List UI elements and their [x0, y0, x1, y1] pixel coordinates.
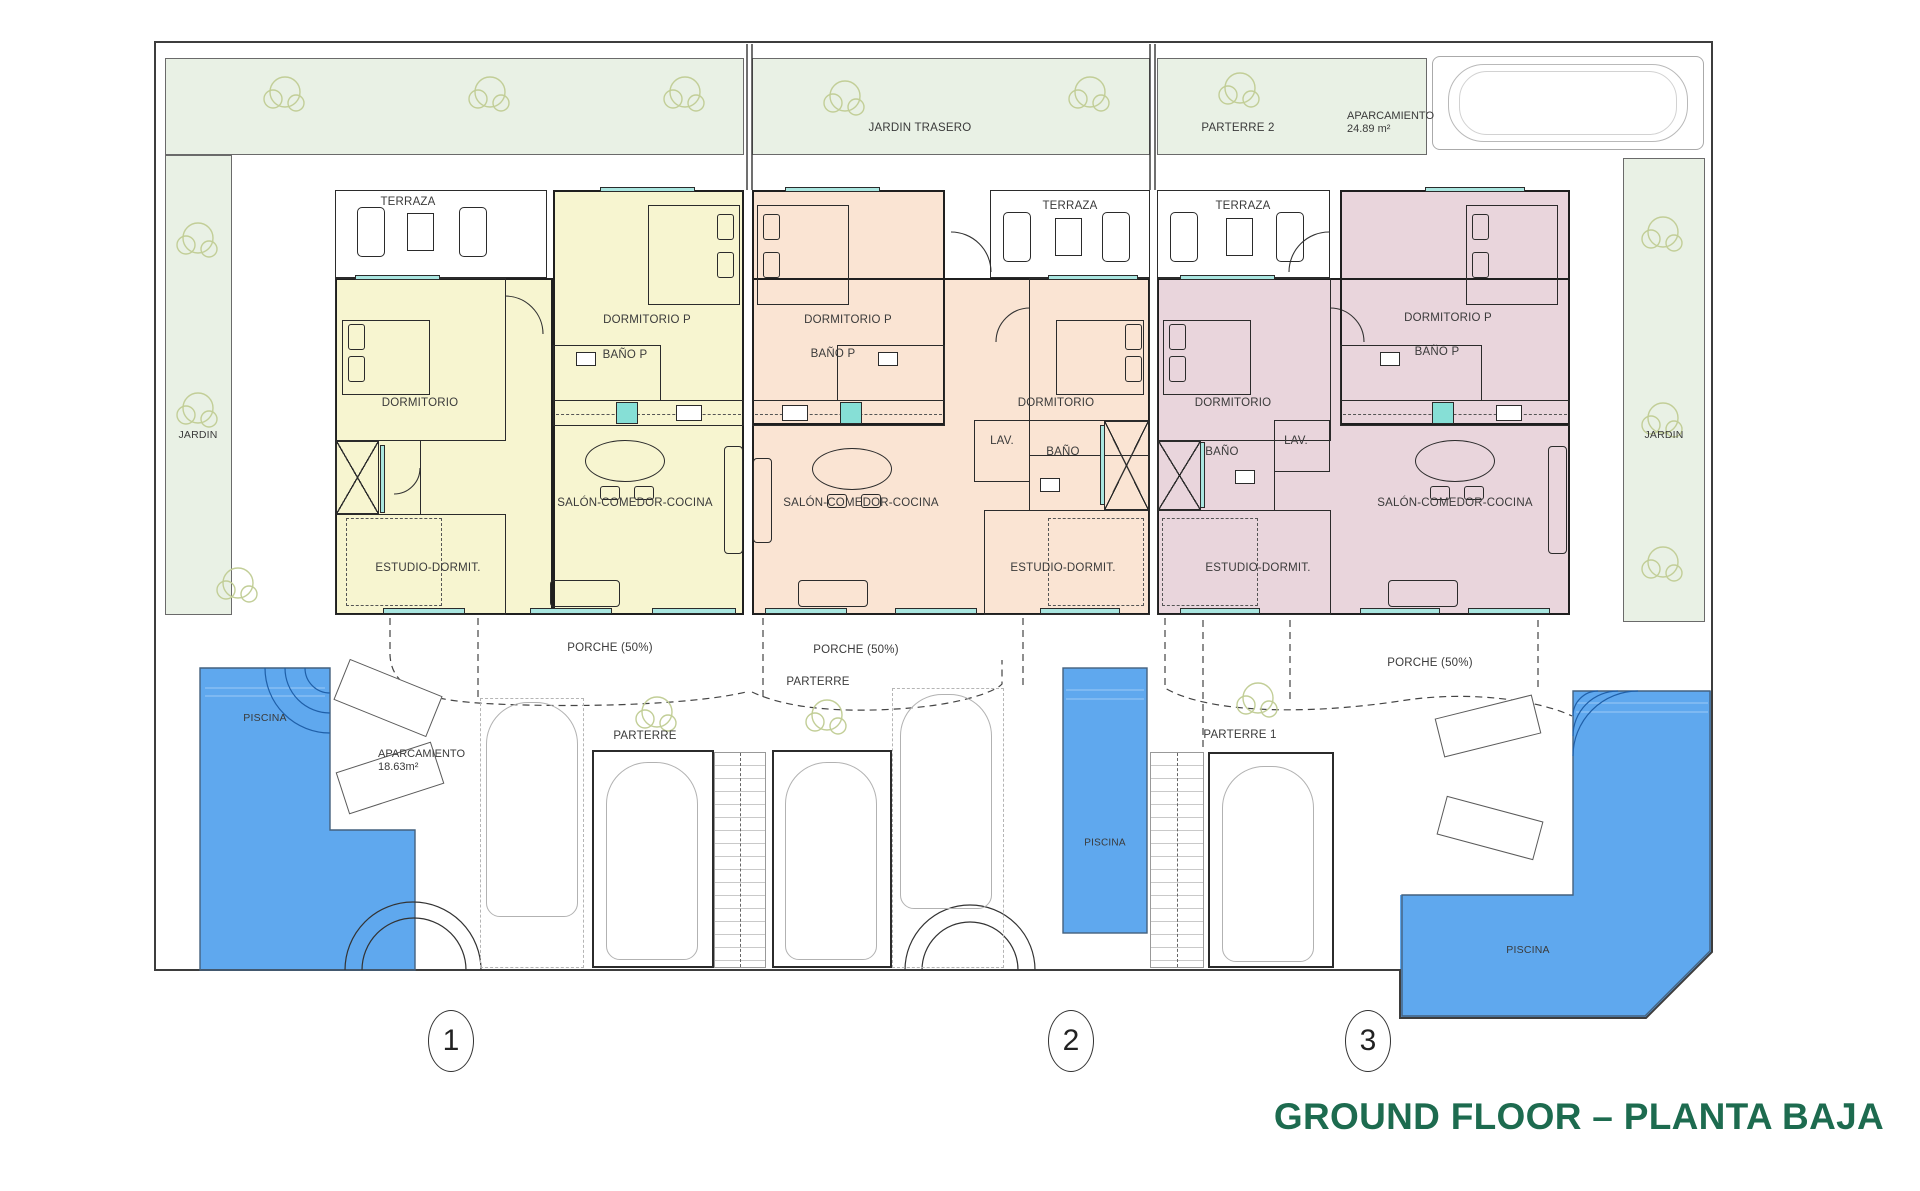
- label-dormitorio-unit1: DORMITORIO: [382, 397, 459, 409]
- car-icon: [900, 694, 992, 909]
- sofa-icon: [753, 458, 772, 543]
- label-jardin-left: JARDIN: [178, 429, 217, 441]
- label-salon-unit3: SALÓN-COMEDOR-COCINA: [1377, 497, 1532, 509]
- tree-icon: [217, 568, 257, 602]
- toilet-icon: [878, 352, 898, 366]
- window: [600, 187, 695, 192]
- toilet-icon: [1040, 478, 1060, 492]
- label-terraza-unit3: TERRAZA: [1215, 200, 1270, 212]
- label-salon-unit1: SALÓN-COMEDOR-COCINA: [557, 497, 712, 509]
- tree-icon: [1642, 547, 1682, 581]
- terrace-chair-icon: [1003, 212, 1031, 262]
- window: [895, 608, 977, 614]
- label-parterre-2: PARTERRE 2: [1201, 122, 1274, 134]
- pillow-icon: [1472, 214, 1489, 240]
- page-title: GROUND FLOOR – PLANTA BAJA: [1274, 1096, 1884, 1138]
- label-terraza-unit2: TERRAZA: [1042, 200, 1097, 212]
- label-bano-p-unit2: BAÑO P: [811, 348, 856, 360]
- kitchen-counter-unit1: [553, 400, 744, 426]
- shower-unit3: [1158, 441, 1201, 510]
- sofa-icon: [724, 446, 743, 554]
- unit-number-1-value: 1: [443, 1024, 460, 1058]
- window: [530, 608, 612, 614]
- unit-number-2: 2: [1048, 1010, 1094, 1072]
- dining-table-icon: [1415, 440, 1495, 482]
- tree-icon: [1069, 77, 1109, 111]
- window: [1468, 608, 1550, 614]
- label-piscina-left: PISCINA: [243, 712, 286, 724]
- label-porche-unit2: PORCHE (50%): [813, 644, 898, 656]
- shower-unit2: [1104, 421, 1149, 510]
- terrace-table-icon: [1055, 218, 1082, 256]
- label-dormitorio-p-unit2: DORMITORIO P: [804, 314, 892, 326]
- tree-icon: [1219, 73, 1259, 107]
- window: [652, 608, 736, 614]
- pillow-icon: [1125, 324, 1142, 350]
- toilet-icon: [1235, 470, 1255, 484]
- pillow-icon: [763, 214, 780, 240]
- hob-icon: [840, 402, 862, 424]
- sink-icon: [1496, 405, 1522, 421]
- terrace-chair-icon: [357, 207, 385, 257]
- label-lav-unit3: LAV.: [1284, 435, 1308, 447]
- sofa-icon: [550, 580, 620, 607]
- window: [1100, 425, 1105, 505]
- label-porche-unit1: PORCHE (50%): [567, 642, 652, 654]
- label-aparcamiento-left: APARCAMIENTO 18.63m²: [378, 748, 465, 774]
- label-estudio-unit2: ESTUDIO-DORMIT.: [1010, 562, 1115, 574]
- unit-number-2-value: 2: [1063, 1024, 1080, 1058]
- tree-icon: [177, 223, 217, 257]
- unit-number-3-value: 3: [1360, 1024, 1377, 1058]
- sofa-icon: [798, 580, 868, 607]
- window: [1048, 275, 1138, 280]
- label-parterre-a: PARTERRE: [786, 676, 849, 688]
- tree-icon: [1642, 217, 1682, 251]
- label-aparcamiento-top-name: APARCAMIENTO: [1347, 110, 1434, 123]
- label-estudio-unit3: ESTUDIO-DORMIT.: [1205, 562, 1310, 574]
- hob-icon: [616, 402, 638, 424]
- label-bano-p-unit1: BAÑO P: [603, 349, 648, 361]
- label-aparcamiento-left-area: 18.63m²: [378, 761, 465, 774]
- label-terraza-unit1: TERRAZA: [380, 196, 435, 208]
- sink-icon: [676, 405, 702, 421]
- stairs-centerline: [740, 753, 741, 967]
- site-plan: JARDIN TRASERO PARTERRE 2 APARCAMIENTO 2…: [0, 0, 1920, 1191]
- label-piscina-center: PISCINA: [1084, 838, 1125, 849]
- car-icon: [486, 702, 578, 917]
- stairs-centerline: [1177, 753, 1178, 967]
- label-dormitorio-unit3: DORMITORIO: [1195, 397, 1272, 409]
- pillow-icon: [1169, 324, 1186, 350]
- window: [1180, 275, 1275, 280]
- car-icon: [785, 762, 877, 960]
- room-banop-unit3: [1340, 345, 1482, 401]
- window: [765, 608, 847, 614]
- kitchen-counter-unit3: [1340, 400, 1570, 426]
- hob-icon: [1432, 402, 1454, 424]
- toilet-icon: [1380, 352, 1400, 366]
- window: [1360, 608, 1440, 614]
- label-aparcamiento-top: APARCAMIENTO 24.89 m²: [1347, 110, 1434, 136]
- label-parterre-1: PARTERRE 1: [1203, 729, 1276, 741]
- pillow-icon: [1169, 356, 1186, 382]
- car-icon: [1222, 766, 1314, 962]
- label-aparcamiento-left-name: APARCAMIENTO: [378, 748, 465, 761]
- terrace-chair-icon: [1102, 212, 1130, 262]
- label-jardin-trasero: JARDIN TRASERO: [869, 122, 972, 134]
- label-parterre-b: PARTERRE: [613, 730, 676, 742]
- tree-icon: [177, 393, 217, 427]
- pillow-icon: [763, 252, 780, 278]
- label-dormitorio-p-unit3: DORMITORIO P: [1404, 312, 1492, 324]
- pillow-icon: [1125, 356, 1142, 382]
- pillow-icon: [1472, 252, 1489, 278]
- label-aparcamiento-top-area: 24.89 m²: [1347, 123, 1434, 136]
- stairs-strip: [1150, 752, 1204, 968]
- car-icon: [606, 762, 698, 960]
- terrace-chair-icon: [1276, 212, 1304, 262]
- tree-icon: [264, 77, 304, 111]
- label-estudio-unit1: ESTUDIO-DORMIT.: [375, 562, 480, 574]
- label-bano-p-unit3: BAÑO P: [1415, 346, 1460, 358]
- window: [1200, 442, 1205, 508]
- stairs-strip: [714, 752, 766, 968]
- unit-number-3: 3: [1345, 1010, 1391, 1072]
- lot-divider-walls: [747, 44, 1155, 190]
- room-lav-unit2: [974, 420, 1030, 482]
- terrace-table-icon: [1226, 218, 1253, 256]
- label-jardin-right: JARDIN: [1644, 429, 1683, 441]
- window: [1425, 187, 1525, 192]
- tree-icon: [806, 700, 846, 734]
- terrace-table-icon: [407, 213, 434, 251]
- window: [1040, 608, 1120, 614]
- label-piscina-right: PISCINA: [1506, 944, 1549, 956]
- window: [355, 275, 440, 280]
- label-bano-unit2: BAÑO: [1046, 446, 1079, 458]
- shower-unit1: [336, 441, 379, 514]
- label-salon-unit2: SALÓN-COMEDOR-COCINA: [783, 497, 938, 509]
- window: [1180, 608, 1260, 614]
- pillow-icon: [717, 214, 734, 240]
- window: [383, 608, 465, 614]
- dining-table-icon: [585, 440, 665, 482]
- sofa-icon: [1388, 580, 1458, 607]
- pillow-icon: [348, 324, 365, 350]
- unit-number-1: 1: [428, 1010, 474, 1072]
- toilet-icon: [576, 352, 596, 366]
- tree-icon: [1237, 683, 1277, 717]
- sink-icon: [782, 405, 808, 421]
- window: [785, 187, 880, 192]
- pillow-icon: [348, 356, 365, 382]
- label-lav-unit2: LAV.: [990, 435, 1014, 447]
- car-icon: [1459, 71, 1677, 135]
- tree-icon: [469, 77, 509, 111]
- terrace-chair-icon: [1170, 212, 1198, 262]
- terrace-chair-icon: [459, 207, 487, 257]
- label-porche-unit3: PORCHE (50%): [1387, 657, 1472, 669]
- tree-icon: [664, 77, 704, 111]
- pillow-icon: [717, 252, 734, 278]
- dining-table-icon: [812, 448, 892, 490]
- label-dormitorio-p-unit1: DORMITORIO P: [603, 314, 691, 326]
- window: [380, 445, 385, 513]
- tree-icon: [824, 81, 864, 115]
- label-dormitorio-unit2: DORMITORIO: [1018, 397, 1095, 409]
- sofa-icon: [1548, 446, 1567, 554]
- label-bano-unit3: BAÑO: [1205, 446, 1238, 458]
